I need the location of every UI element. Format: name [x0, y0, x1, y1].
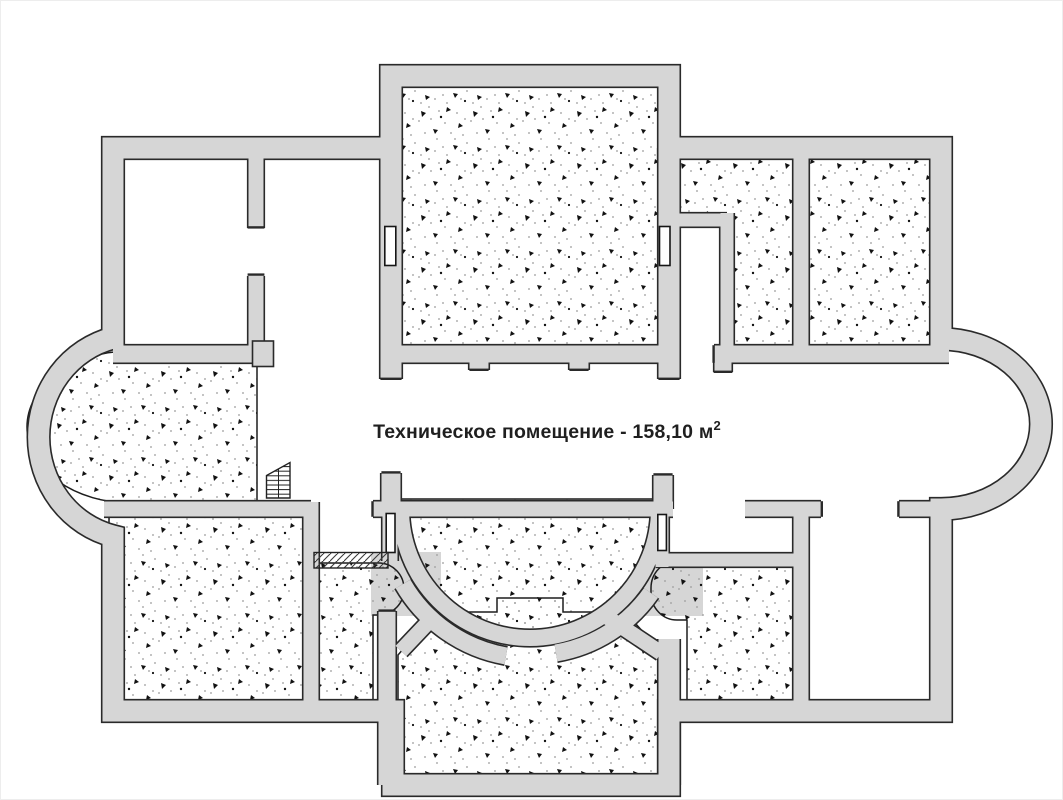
room-bottom-left — [109, 505, 316, 713]
wall-end-cap — [569, 369, 588, 371]
wall-end-cap — [378, 609, 395, 611]
vent-hatch-icon — [314, 553, 388, 569]
wall-end-cap — [658, 378, 679, 380]
wall-end-cap — [712, 345, 714, 363]
wall-end-cap — [714, 371, 733, 373]
room-top-right-rect — [801, 151, 944, 357]
wall-end-cap — [821, 501, 823, 517]
column-pier — [253, 341, 274, 367]
door-window-slot — [658, 515, 667, 551]
floor-plan-canvas: Техническое помещение - 158,10 м2 — [1, 1, 1063, 800]
wall-end-cap — [371, 501, 373, 517]
room-area-label: Техническое помещение - 158,10 м2 — [373, 418, 721, 443]
wall-end-cap — [381, 471, 400, 473]
room-top-center — [396, 81, 664, 357]
stairs-icon — [267, 463, 291, 499]
room-area-label-superscript: 2 — [713, 418, 720, 433]
wall-end-cap — [469, 369, 488, 371]
door-window-slot — [660, 227, 671, 266]
door-window-slot — [386, 514, 395, 553]
door-window-slot — [385, 227, 396, 266]
room-area-label-text: Техническое помещение - 158,10 м — [373, 421, 713, 443]
wall-end-cap — [897, 501, 899, 517]
wall-end-cap — [653, 473, 672, 475]
wall-end-cap — [248, 273, 265, 275]
wall-end-cap — [248, 226, 265, 228]
wall-end-cap — [380, 378, 401, 380]
floor-plan-page: Техническое помещение - 158,10 м2 — [0, 0, 1063, 800]
